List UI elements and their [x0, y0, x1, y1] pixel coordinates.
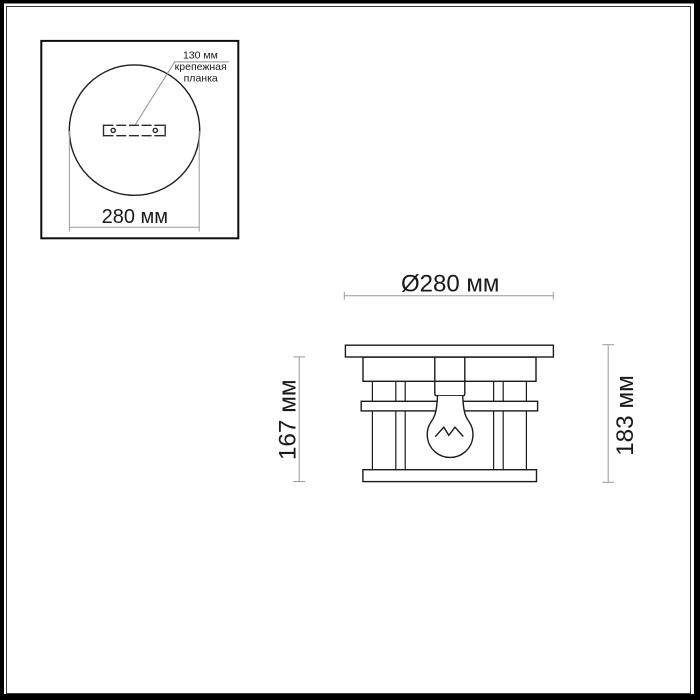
svg-text:крепежная: крепежная — [175, 61, 227, 73]
svg-text:планка: планка — [184, 73, 218, 85]
svg-text:130 мм: 130 мм — [183, 50, 218, 62]
svg-text:183 мм: 183 мм — [612, 375, 639, 456]
svg-text:167 мм: 167 мм — [274, 379, 301, 460]
svg-text:280 мм: 280 мм — [102, 206, 168, 228]
svg-text:Ø280 мм: Ø280 мм — [401, 270, 499, 297]
